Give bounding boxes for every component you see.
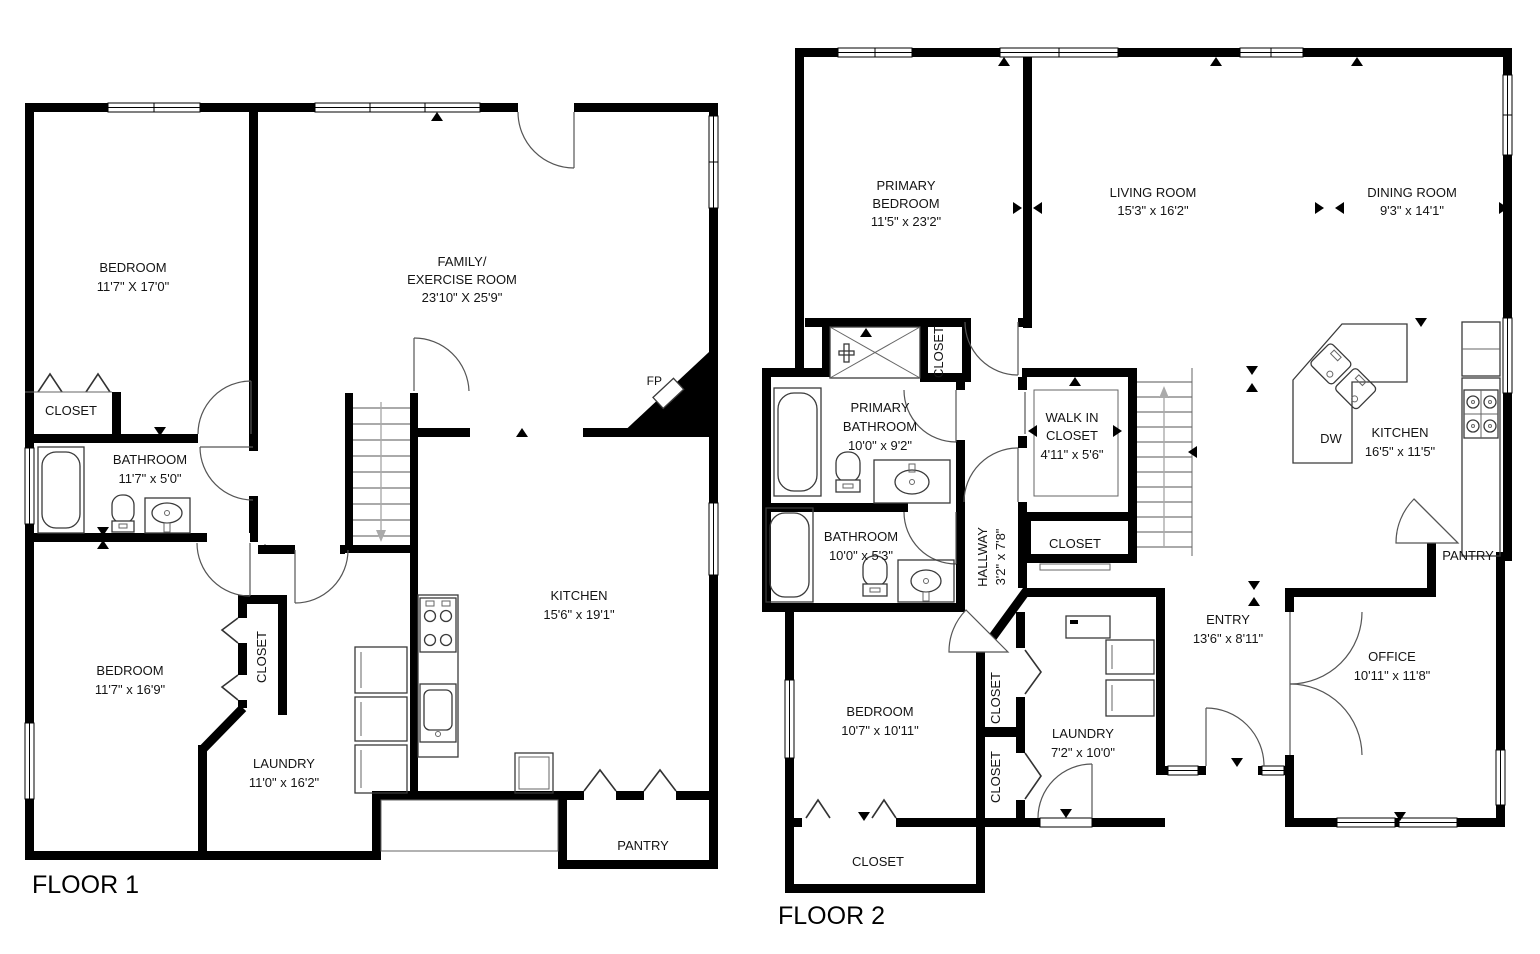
bathtub-icon — [38, 447, 84, 533]
room-label-walkin-2: CLOSET — [1046, 428, 1098, 443]
fireplace-label: FP — [647, 374, 662, 388]
room-label-primary-bath-1: PRIMARY — [851, 400, 910, 415]
laundry-shelf — [1066, 616, 1110, 638]
room-dims-kitchen: 15'6" x 19'1" — [543, 607, 615, 622]
door-arc — [198, 381, 251, 434]
window — [1503, 75, 1512, 155]
room-dims-primary-bedroom: 11'5" x 23'2" — [871, 214, 942, 229]
window — [1168, 766, 1198, 775]
floor1-markers — [97, 112, 528, 553]
french-doors — [1290, 612, 1362, 755]
floor2-plan: PRIMARY BEDROOM 11'5" x 23'2" LIVING ROO… — [762, 48, 1512, 930]
bathtub-icon — [766, 508, 813, 602]
kitchen-island — [1293, 324, 1407, 463]
patio-door-arc — [518, 103, 574, 168]
window — [1399, 818, 1457, 827]
room-label-office: OFFICE — [1368, 649, 1416, 664]
room-dims-laundry: 11'0" x 16'2" — [249, 775, 320, 790]
room-label-family-2: EXERCISE ROOM — [407, 272, 517, 287]
double-sink-icon — [1309, 342, 1377, 410]
floor-plan-drawing: BEDROOM 11'7" X 17'0" CLOSET FAMILY/ EXE… — [0, 0, 1540, 954]
room-label-hallway: HALLWAY — [975, 527, 990, 587]
room-dims-bedroom2: 10'7" x 10'11" — [841, 723, 919, 738]
dryer-icon — [355, 697, 407, 741]
floor1-title: FLOOR 1 — [32, 871, 139, 899]
door-arc — [965, 322, 1018, 375]
room-dims-family: 23'10" X 25'9" — [422, 290, 503, 305]
room-dims-laundry2: 7'2" x 10'0" — [1051, 745, 1115, 760]
room-dims-kitchen2: 16'5" x 11'5" — [1365, 444, 1436, 459]
room-dims-bedroom-tl: 11'7" X 17'0" — [97, 279, 170, 294]
room-dims-bathroom: 11'7" x 5'0" — [118, 471, 181, 486]
door-arc — [200, 447, 253, 500]
floor2-title: FLOOR 2 — [778, 902, 885, 930]
room-label-closet-tl: CLOSET — [45, 403, 97, 418]
window — [1262, 766, 1284, 775]
window — [1000, 48, 1118, 57]
room-label-bathroom2: BATHROOM — [824, 529, 898, 544]
room-dims-bathroom2: 10'0" x 5'3" — [829, 548, 893, 563]
room-label-living: LIVING ROOM — [1110, 185, 1197, 200]
window — [108, 103, 200, 112]
floor-plan-page: BEDROOM 11'7" X 17'0" CLOSET FAMILY/ EXE… — [0, 0, 1540, 954]
fridge-icon — [1462, 322, 1500, 376]
window — [25, 723, 34, 799]
door-arc — [904, 390, 956, 442]
room-dims-hallway: 3'2" x 7'8" — [993, 528, 1008, 585]
room-label-family-1: FAMILY/ — [438, 254, 487, 269]
stairs-up-arrow — [1159, 386, 1169, 398]
room-label-kitchen2: KITCHEN — [1371, 425, 1428, 440]
door-arc — [904, 512, 956, 564]
room-dims-living: 15'3" x 16'2" — [1117, 203, 1189, 218]
room-dims-walkin: 4'11" x 5'6" — [1040, 447, 1103, 462]
window — [1496, 750, 1505, 805]
room-label-closet-bl: CLOSET — [254, 631, 269, 683]
dishwasher-label: DW — [1320, 431, 1342, 446]
door-arc — [197, 543, 250, 596]
washer-icon — [355, 647, 407, 693]
floor1-stairs — [353, 402, 410, 542]
room-label-hall-closet-1: CLOSET — [988, 672, 1003, 724]
sink-icon — [898, 560, 954, 602]
window — [1240, 48, 1303, 57]
window — [785, 680, 794, 758]
room-label-laundry2: LAUNDRY — [1052, 726, 1114, 741]
room-label-walkin-1: WALK IN — [1046, 410, 1099, 425]
sink-icon — [145, 498, 190, 533]
utility-icon — [355, 745, 407, 793]
room-label-closet-bottom: CLOSET — [852, 854, 904, 869]
window — [1337, 818, 1395, 827]
floor1-walls — [25, 103, 718, 869]
walkin-closet-system — [1034, 390, 1118, 496]
window — [838, 48, 912, 57]
window — [1503, 318, 1512, 393]
window — [709, 503, 718, 575]
room-label-primary-bedroom-1: PRIMARY — [877, 178, 936, 193]
window — [25, 448, 34, 524]
stove-icon — [1464, 390, 1498, 438]
room-label-primary-bath-2: BATHROOM — [843, 419, 917, 434]
floor1-plan: BEDROOM 11'7" X 17'0" CLOSET FAMILY/ EXE… — [25, 103, 718, 899]
floor1-labels: BEDROOM 11'7" X 17'0" CLOSET FAMILY/ EXE… — [32, 254, 669, 899]
room-label-entry: ENTRY — [1206, 612, 1250, 627]
room-dims-bedroom-bl: 11'7" x 16'9" — [95, 682, 166, 697]
pantry-door-fan — [1396, 499, 1458, 543]
room-label-bedroom2: BEDROOM — [846, 704, 913, 719]
door-arc — [295, 550, 348, 603]
door-sill — [1040, 564, 1110, 570]
door-arc — [964, 448, 1018, 502]
room-label-pantry2: PANTRY — [1442, 548, 1494, 563]
room-label-stair-closet: CLOSET — [1049, 536, 1101, 551]
floor2-stairs — [1137, 368, 1192, 556]
door-arc — [414, 338, 469, 391]
sink-icon — [874, 460, 950, 503]
stove-icon — [420, 598, 456, 652]
kitchen-counter — [418, 595, 458, 757]
shower-icon — [830, 327, 920, 378]
room-label-bathroom: BATHROOM — [113, 452, 187, 467]
room-label-pantry: PANTRY — [617, 838, 669, 853]
toilet-icon — [112, 495, 134, 532]
room-label-primary-closet: CLOSET — [931, 326, 946, 378]
kitchen-sink-icon — [420, 684, 456, 742]
bathtub-icon — [774, 388, 821, 496]
front-door-arc — [1206, 708, 1264, 766]
dryer-icon — [1106, 680, 1154, 716]
window — [709, 116, 718, 208]
room-dims-primary-bath: 10'0" x 9'2" — [848, 438, 912, 453]
toilet-icon — [836, 452, 860, 492]
room-label-dining: DINING ROOM — [1367, 185, 1457, 200]
room-label-bedroom-tl: BEDROOM — [99, 260, 166, 275]
room-dims-office: 10'11" x 11'8" — [1354, 668, 1431, 683]
island-unit — [515, 753, 553, 793]
room-label-hall-closet-2: CLOSET — [988, 751, 1003, 803]
room-label-laundry: LAUNDRY — [253, 756, 315, 771]
room-dims-entry: 13'6" x 8'11" — [1193, 631, 1264, 646]
room-label-kitchen: KITCHEN — [550, 588, 607, 603]
room-dims-dining: 9'3" x 14'1" — [1380, 203, 1444, 218]
window — [315, 103, 480, 112]
patio-outline — [381, 800, 558, 851]
washer-icon — [1106, 640, 1154, 674]
door-sill — [1040, 818, 1092, 827]
room-label-primary-bedroom-2: BEDROOM — [872, 196, 939, 211]
room-label-bedroom-bl: BEDROOM — [96, 663, 163, 678]
